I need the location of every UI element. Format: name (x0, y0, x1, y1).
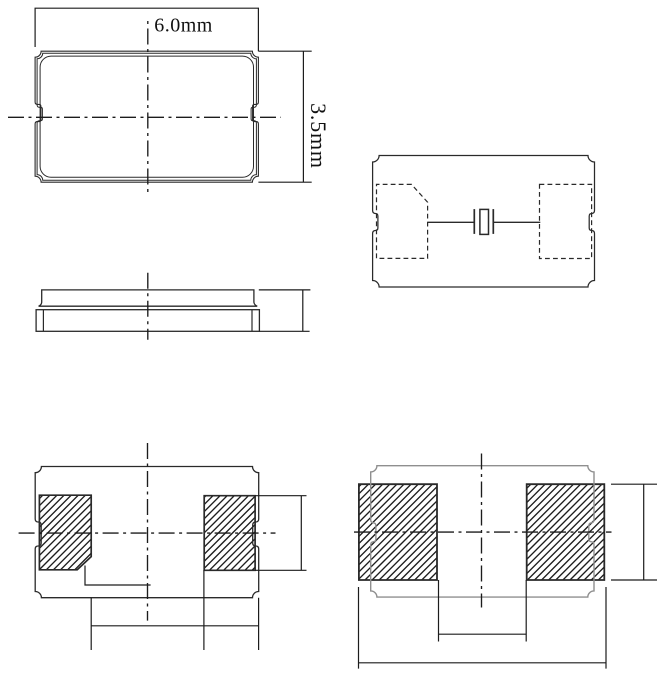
svg-text:6.0mm: 6.0mm (154, 15, 213, 37)
svg-text:3.5mm: 3.5mm (306, 103, 331, 169)
